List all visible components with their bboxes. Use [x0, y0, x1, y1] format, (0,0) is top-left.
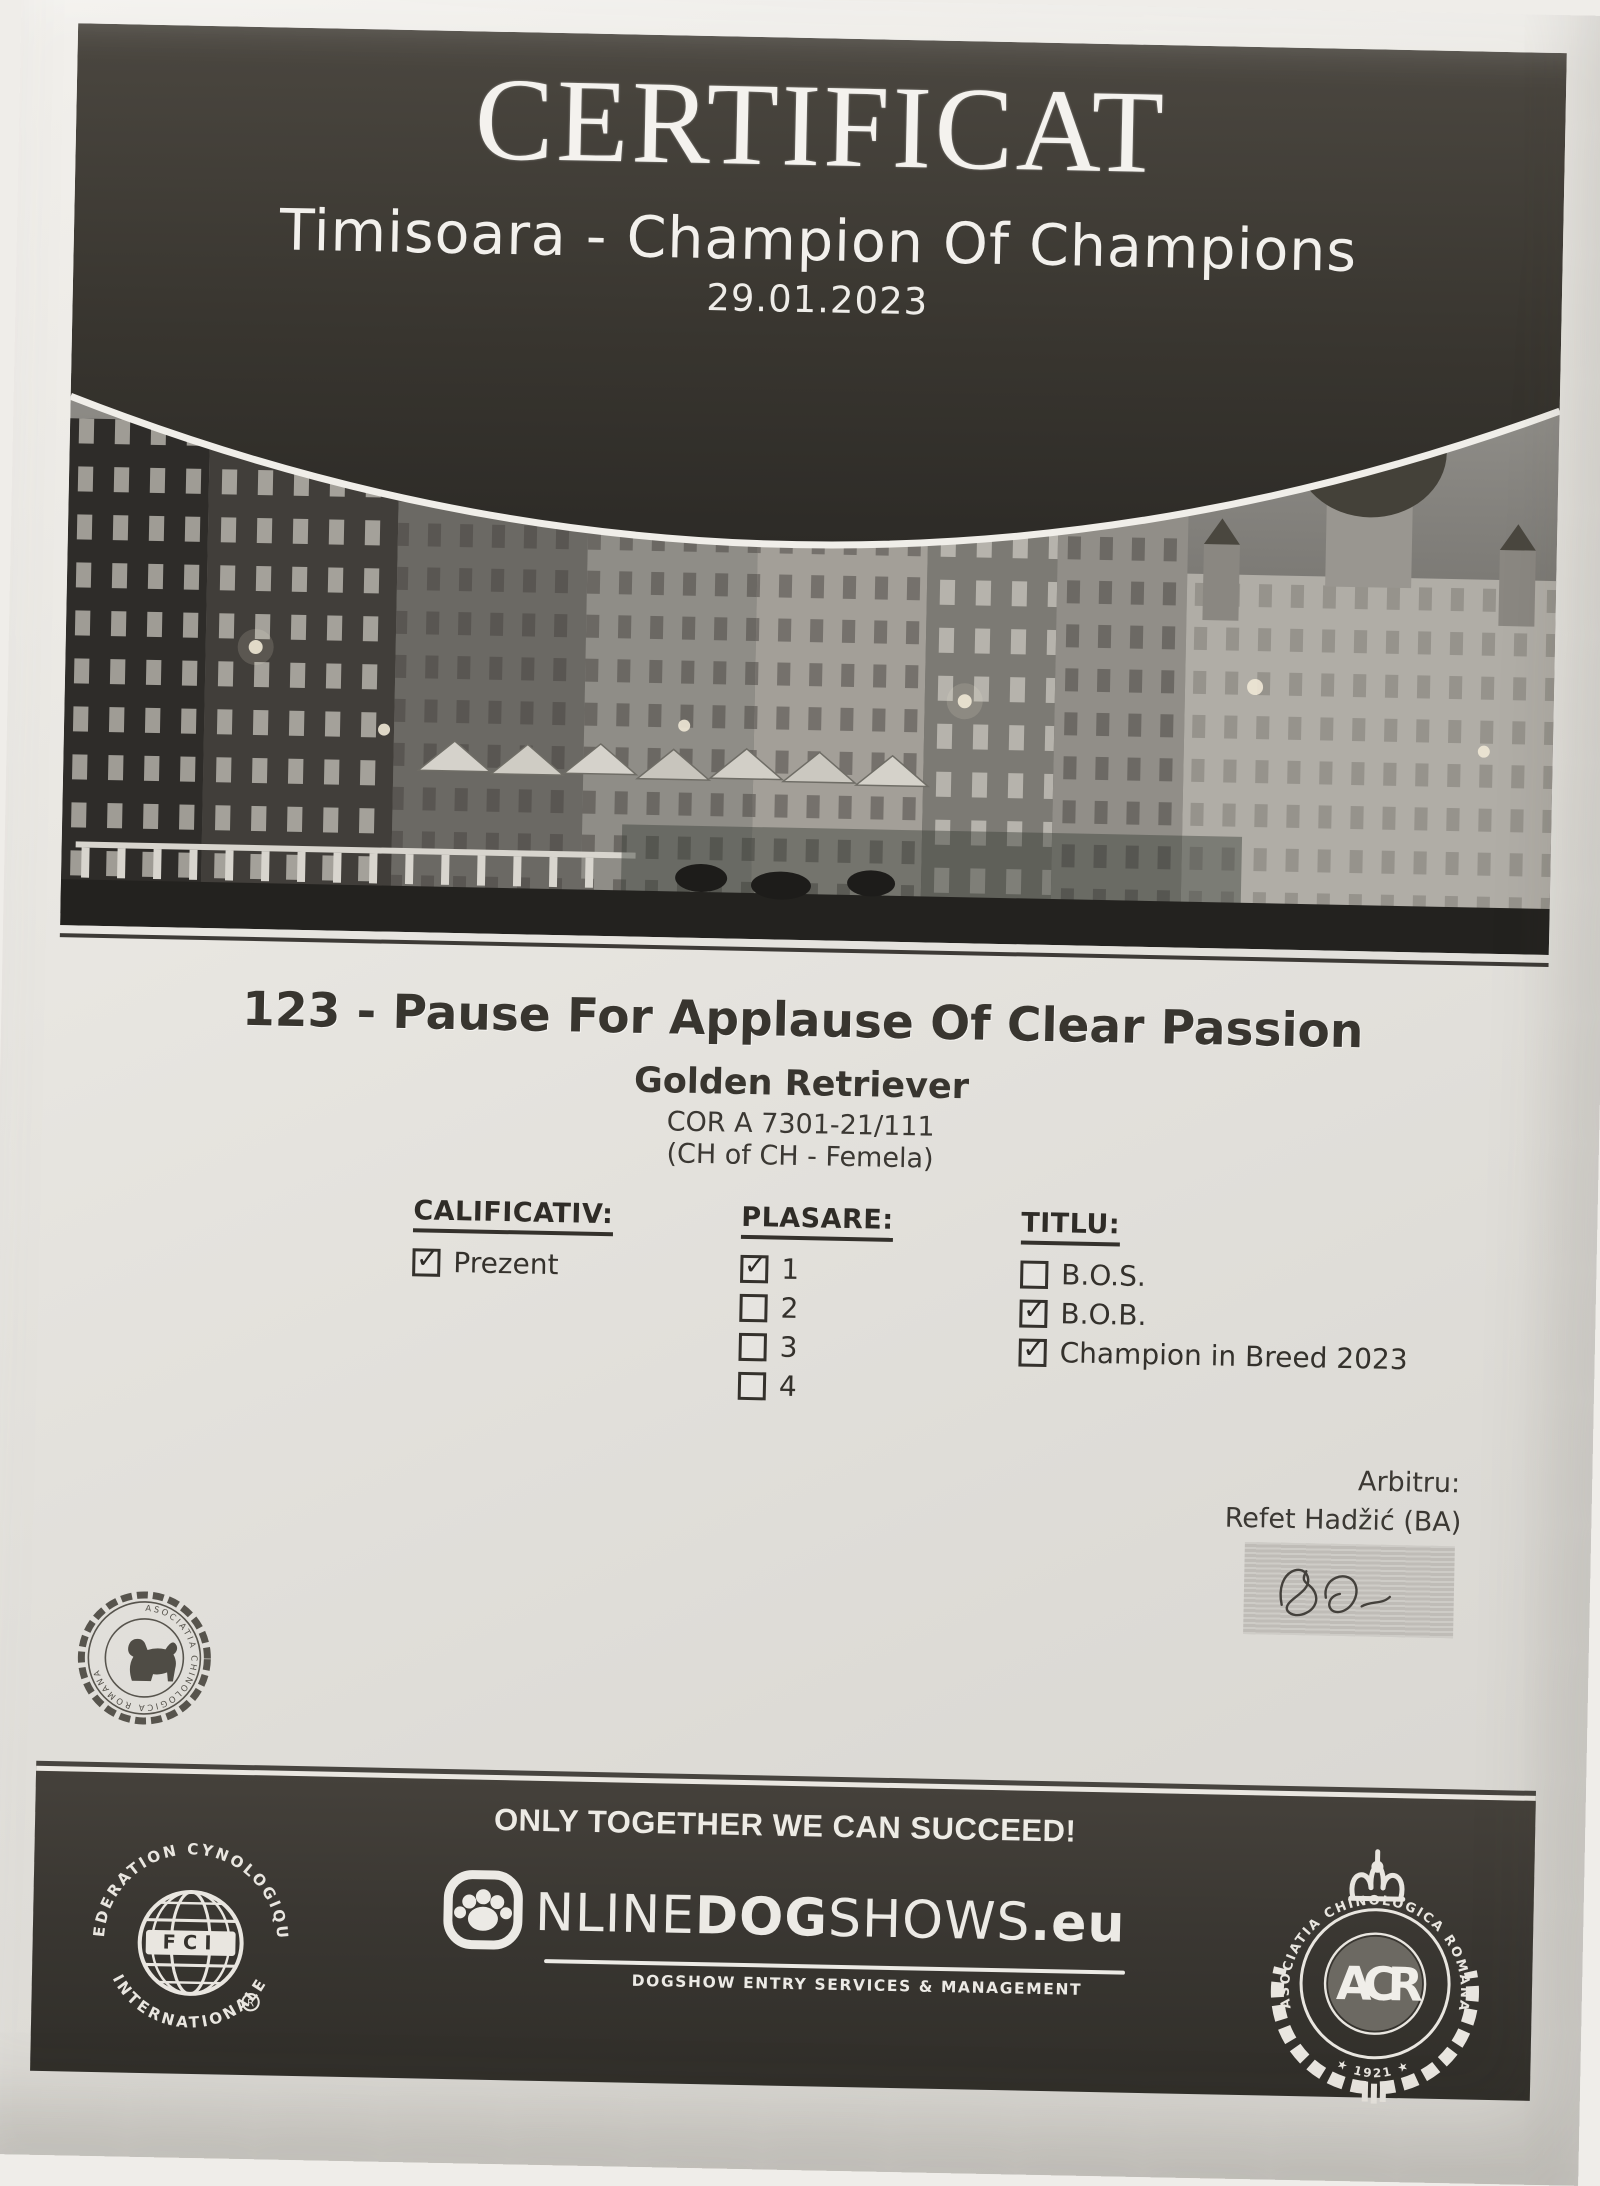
column-plasare: PLASARE: ✓ 1 2 3 4 [737, 1202, 893, 1414]
onlinedogshows-logo: NLINEDOGSHOWS.eu DOGSHOW ENTRY SERVICES … [440, 1867, 1127, 2000]
wordmark-tld: .eu [1030, 1893, 1126, 1955]
checkbox-item-bos: B.O.S. [1020, 1260, 1409, 1295]
checkbox: ✓ [1019, 1299, 1048, 1328]
column-calificativ: CALIFICATIV: ✓ Prezent [412, 1195, 614, 1291]
wordmark-prefix: NLINE [534, 1883, 695, 1946]
check-mark: ✓ [1023, 1297, 1046, 1324]
entry-headline: 123 - Pause For Applause Of Clear Passio… [58, 978, 1548, 1063]
checkbox-item-place-4: 4 [738, 1372, 891, 1402]
fci-registered-mark: R [247, 1998, 254, 2009]
check-mark: ✓ [1022, 1336, 1045, 1363]
checkbox-label: Prezent [453, 1246, 559, 1281]
checkbox [1020, 1260, 1049, 1289]
checkbox: ✓ [412, 1248, 441, 1277]
checkbox [738, 1332, 767, 1361]
wordmark-dog: DOG [694, 1886, 828, 1949]
column-heading: CALIFICATIV: [413, 1195, 614, 1236]
checkbox-item-place-2: 2 [739, 1294, 892, 1324]
svg-text:FEDERATION CYNOLOGIQUE: FEDERATION CYNOLOGIQUE [82, 1832, 293, 1942]
fci-abbr: FCI [162, 1930, 218, 1954]
checkbox-label: B.O.B. [1060, 1297, 1147, 1332]
column-titlu: TITLU: B.O.S. ✓ B.O.B. ✓ Champion in Bre… [1018, 1207, 1410, 1385]
checkbox: ✓ [1018, 1338, 1047, 1367]
judge-signature [1243, 1542, 1455, 1638]
stamp-dog-icon [127, 1639, 177, 1682]
checkbox: ✓ [740, 1254, 769, 1283]
check-mark: ✓ [416, 1245, 439, 1272]
crest-base-bars [1362, 2081, 1386, 2103]
checkbox-item-champion-in-breed: ✓ Champion in Breed 2023 [1018, 1338, 1407, 1373]
achr-round-stamp-icon: ASOCIATIA CHINOLOGICA ROMANA [73, 1584, 216, 1733]
checkbox-label: 3 [779, 1331, 797, 1364]
checkbox-label: B.O.S. [1061, 1258, 1146, 1293]
column-heading: TITLU: [1021, 1207, 1121, 1246]
checkbox-label: 2 [780, 1292, 798, 1325]
column-heading: PLASARE: [741, 1202, 894, 1242]
onlinedogshows-wordmark: NLINEDOGSHOWS.eu [534, 1883, 1126, 1955]
achr-year-text: ★ 1921 ★ [1334, 2056, 1413, 2081]
wordmark-shows: SHOWS [827, 1889, 1031, 1953]
achr-monogram: ACR [1336, 1956, 1423, 2012]
checkbox-item-place-1: ✓ 1 [740, 1255, 893, 1285]
checkbox-item-bob: ✓ B.O.B. [1019, 1299, 1408, 1334]
checkbox-label: 4 [779, 1370, 797, 1403]
onlinedogshows-tagline: DOGSHOW ENTRY SERVICES & MANAGEMENT [440, 1968, 1125, 2000]
checkbox-item-place-3: 3 [738, 1333, 891, 1363]
check-mark: ✓ [744, 1252, 767, 1279]
crown-icon [1351, 1851, 1404, 1899]
checkbox [739, 1293, 768, 1322]
footer-band: ONLY TOGETHER WE CAN SUCCEED! FEDERATION… [30, 1771, 1536, 2101]
judge-name: Refet Hadžić (BA) [1041, 1499, 1462, 1538]
paw-icon [440, 1867, 526, 1957]
checkbox-label: 1 [781, 1253, 799, 1286]
svg-text:★ 1921 ★: ★ 1921 ★ [1334, 2056, 1413, 2081]
certificate-sheet: CERTIFICAT Timisoara - Champion Of Champ… [0, 0, 1600, 2186]
fci-ring-top-text: FEDERATION CYNOLOGIQUE [82, 1832, 293, 1942]
fci-logo-icon: FEDERATION CYNOLOGIQUE INTERNATIONALE FC… [82, 1832, 298, 2054]
judge-label: Arbitru: [1140, 1462, 1461, 1499]
signature-scribble [1243, 1542, 1455, 1638]
checkbox [738, 1371, 767, 1400]
checkbox-label: Champion in Breed 2023 [1059, 1336, 1408, 1376]
checkbox-item-prezent: ✓ Prezent [412, 1248, 613, 1279]
achr-crest-icon: ASOCIATIA CHINOLOGICA ROMANA ★ 1921 ★ AC… [1250, 1839, 1501, 2106]
